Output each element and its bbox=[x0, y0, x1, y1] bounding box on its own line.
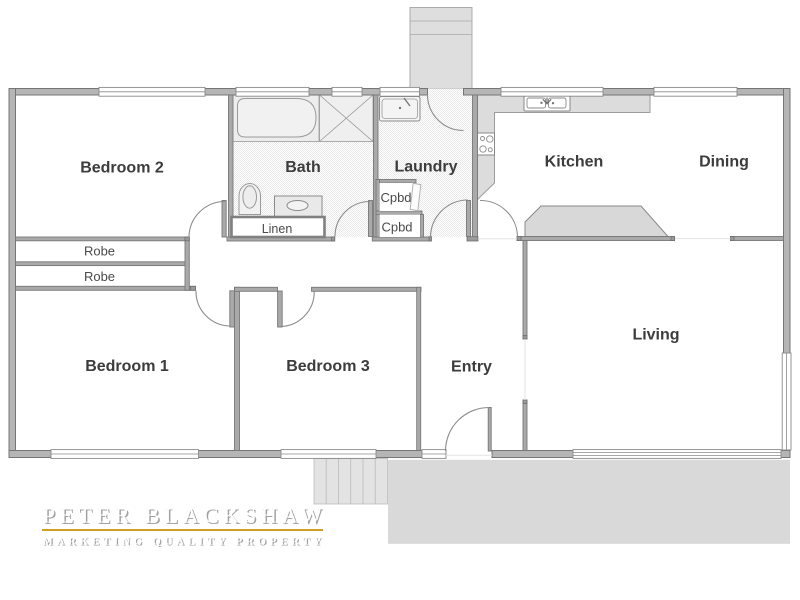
svg-text:Robe: Robe bbox=[84, 269, 115, 284]
svg-text:Bedroom 1: Bedroom 1 bbox=[85, 358, 169, 375]
svg-text:Kitchen: Kitchen bbox=[545, 154, 604, 171]
svg-text:PETER BLACKSHAW: PETER BLACKSHAW bbox=[43, 503, 327, 528]
svg-text:Linen: Linen bbox=[262, 222, 293, 236]
svg-text:Bedroom 3: Bedroom 3 bbox=[286, 358, 370, 375]
svg-text:Living: Living bbox=[632, 327, 679, 344]
svg-text:Cpbd: Cpbd bbox=[381, 219, 412, 234]
svg-text:Bath: Bath bbox=[285, 159, 321, 176]
svg-text:Bedroom 2: Bedroom 2 bbox=[80, 160, 164, 177]
svg-text:Entry: Entry bbox=[451, 359, 492, 376]
svg-text:Cpbd: Cpbd bbox=[380, 190, 411, 205]
svg-text:MARKETING QUALITY PROPERTY: MARKETING QUALITY PROPERTY bbox=[43, 537, 325, 548]
svg-text:Robe: Robe bbox=[84, 243, 115, 258]
svg-text:Dining: Dining bbox=[699, 154, 749, 171]
svg-text:Laundry: Laundry bbox=[394, 159, 457, 176]
